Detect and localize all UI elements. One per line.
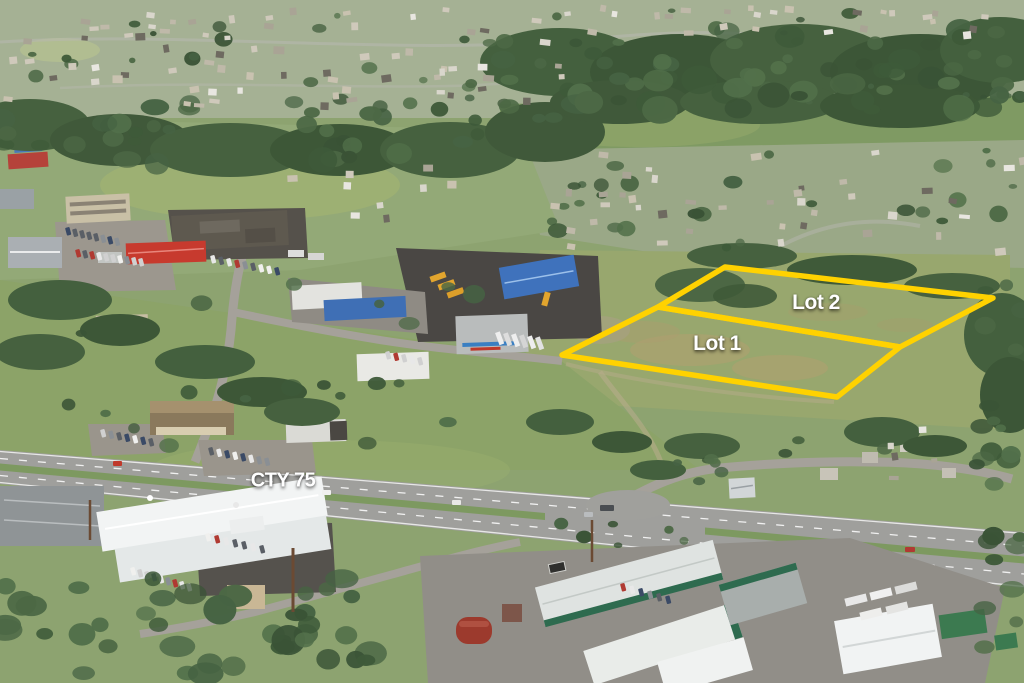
brown-shed — [502, 604, 522, 622]
aerial-scene — [0, 0, 1024, 683]
highway-label: CTY 75 — [251, 470, 315, 493]
lot2-label: Lot 2 — [792, 291, 840, 315]
aerial-photo: Lot 2 Lot 1 CTY 75 — [0, 0, 1024, 683]
lot1-label: Lot 1 — [693, 332, 741, 356]
red-roof-building — [8, 152, 49, 170]
red-car — [113, 461, 122, 466]
truck — [600, 505, 614, 511]
blue-roof-warehouse — [324, 296, 407, 321]
hotel-building — [65, 193, 130, 223]
plant-gray-roof — [0, 486, 104, 546]
